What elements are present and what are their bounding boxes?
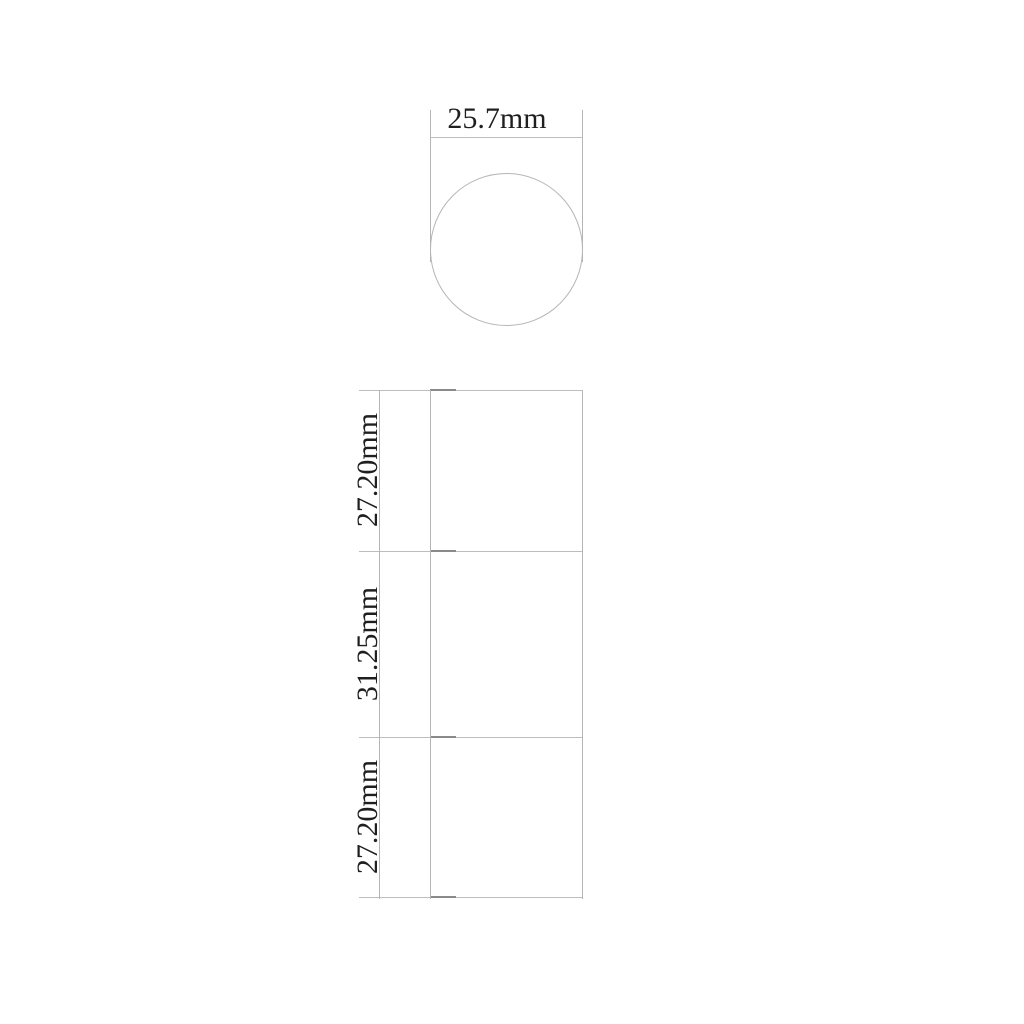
rectangle-left-edge [430,390,431,899]
diameter-label: 25.7mm [420,104,574,134]
section-height-label-3: 27.20mm [353,760,383,874]
section-line-middle-2 [359,737,583,738]
section-height-label-1: 27.20mm [353,413,383,527]
drawing-canvas: 25.7mm 27.20mm 31.25mm 27.20mm [0,0,1024,1024]
section-line-bottom [359,897,583,898]
section-line-bottom-dark-segment [430,896,456,898]
circle-outline [430,173,583,326]
section-height-label-2: 31.25mm [353,587,383,701]
section-line-top [359,390,583,391]
section-line-middle-2-dark-segment [430,736,456,738]
section-line-middle-1-dark-segment [430,550,456,552]
section-line-middle-1 [359,551,583,552]
rectangle-right-edge [582,390,583,899]
section-line-top-dark-segment [430,389,456,391]
diameter-dimension-line [430,137,583,138]
